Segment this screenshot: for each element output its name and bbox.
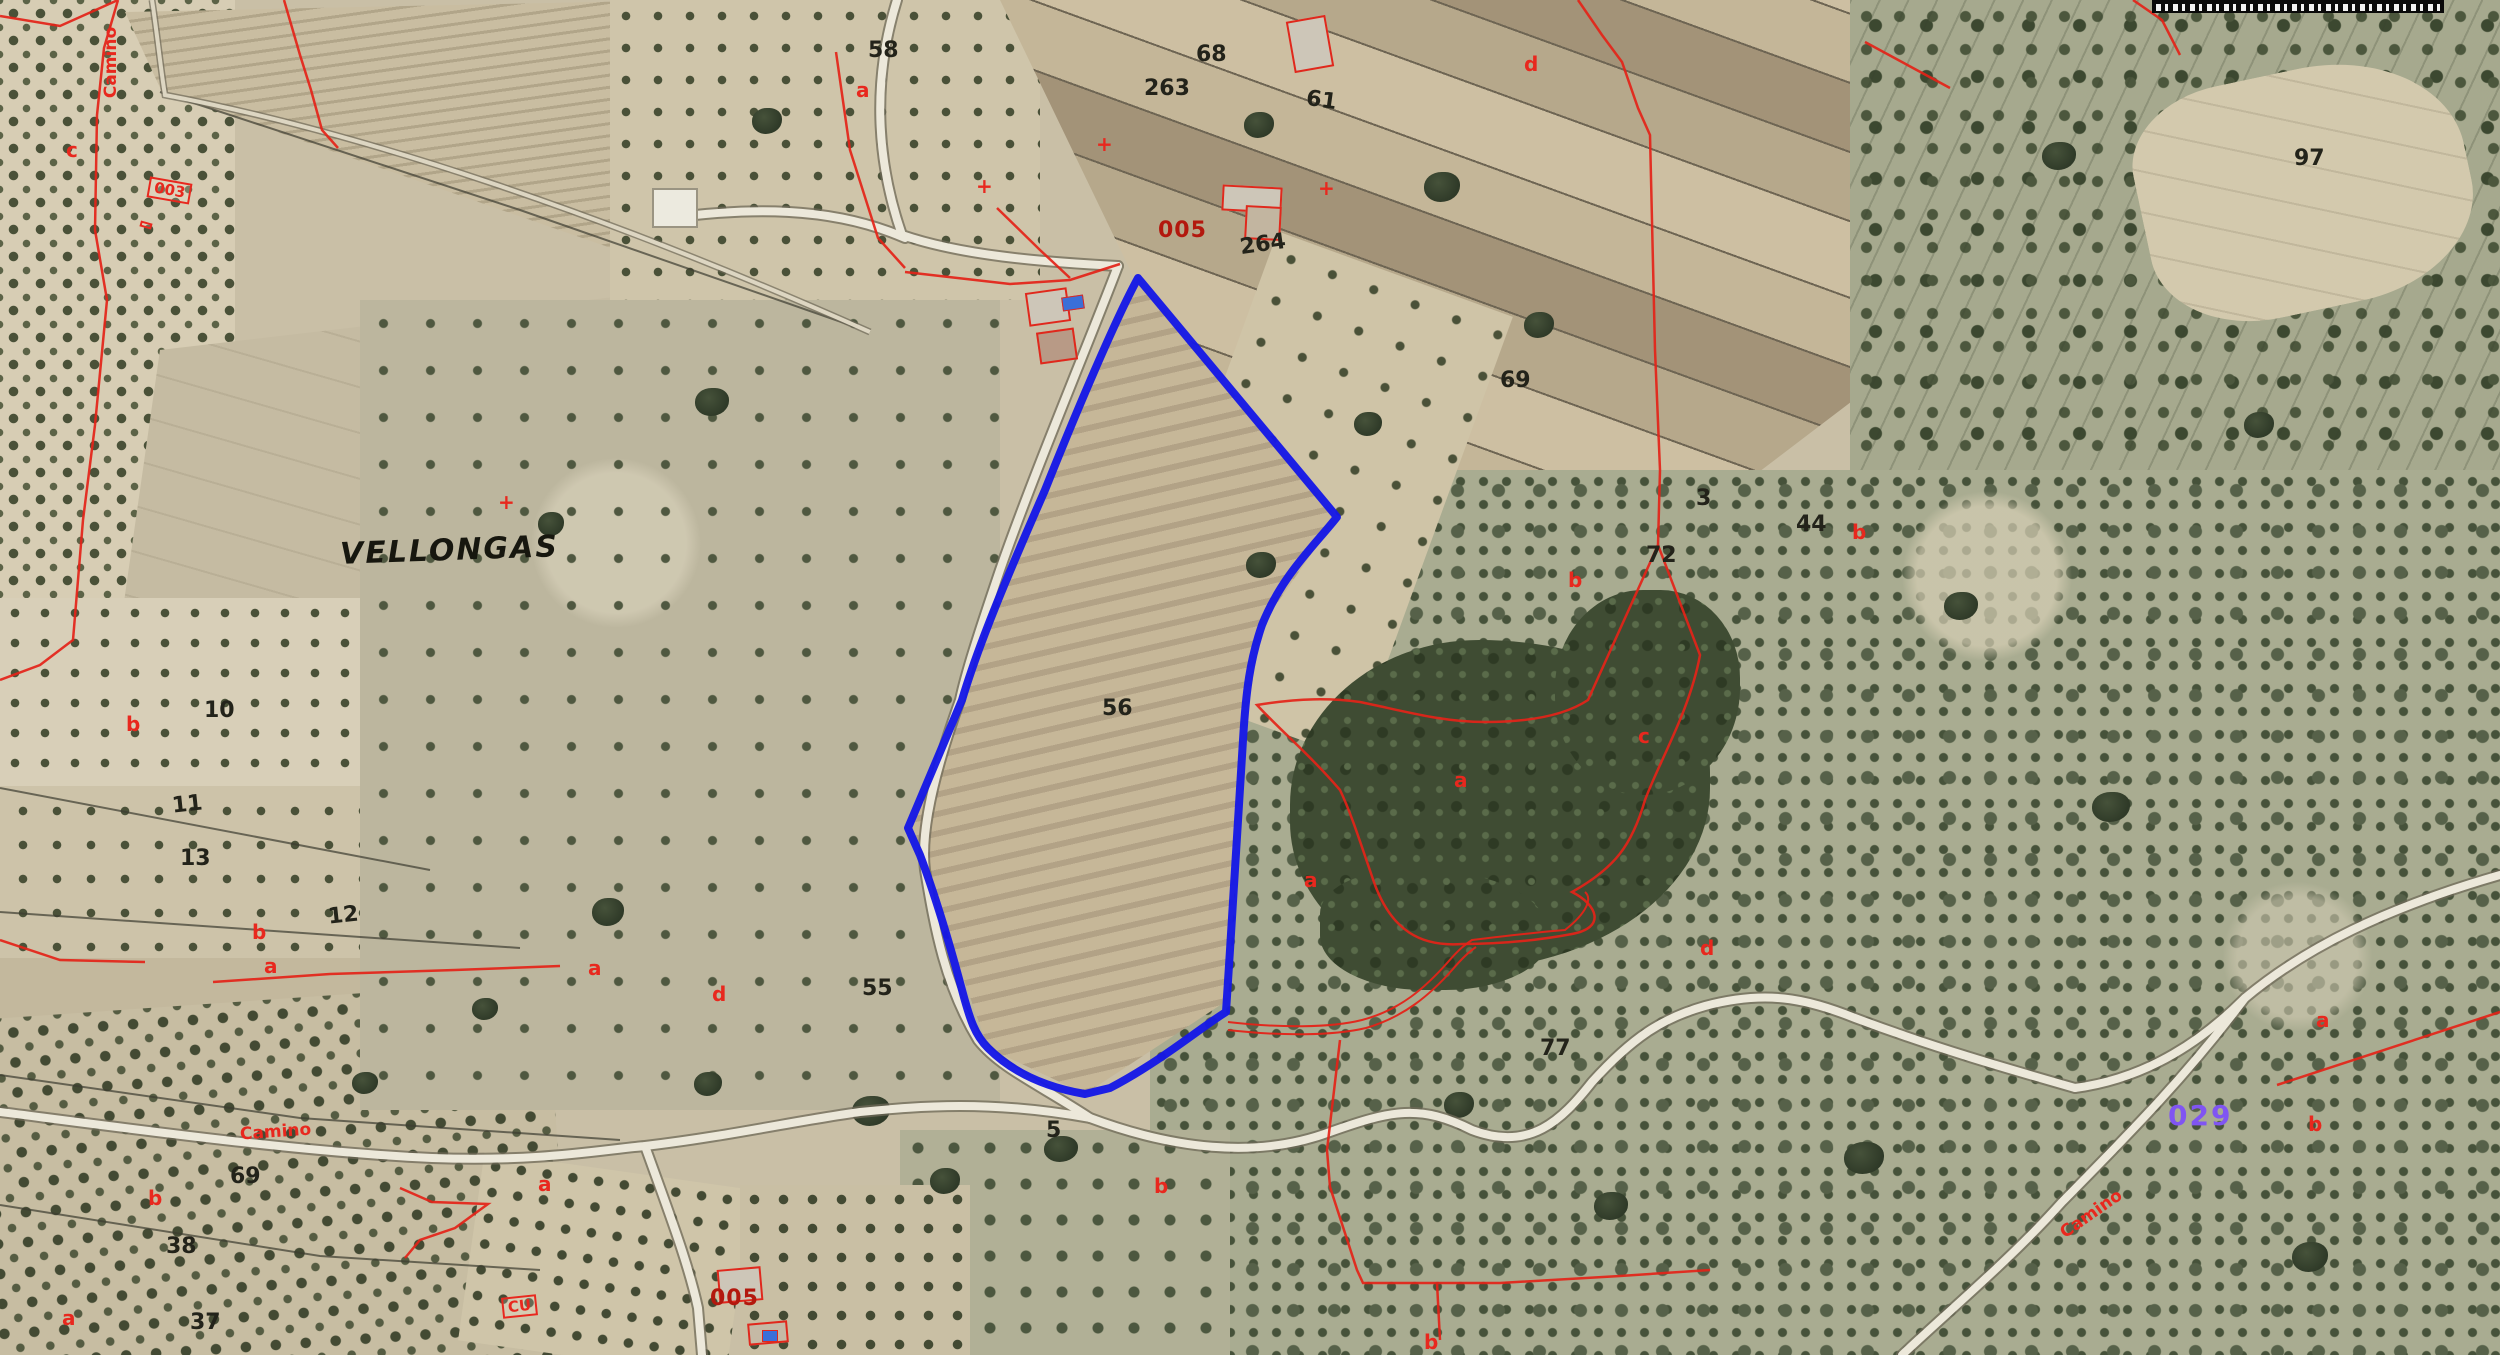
subparcel-a-4: a <box>538 1174 552 1194</box>
building-code-cu: CU <box>501 1294 538 1319</box>
subparcel-d-1: d <box>1524 54 1538 74</box>
building-code-005-top: 005 <box>1158 220 1207 242</box>
survey-cross-3: + <box>1318 178 1335 198</box>
subparcel-b-1: b <box>126 714 140 734</box>
parcel-number-55: 55 <box>862 978 893 1000</box>
parcel-number-72: 72 <box>1646 545 1677 567</box>
subparcel-d-3: d <box>1700 938 1714 958</box>
map-labels-layer: VELLONGAS5868263619726469344725610111312… <box>0 0 2500 1355</box>
subparcel-c-2: c <box>1638 726 1650 746</box>
parcel-number-264: 264 <box>1239 231 1288 259</box>
subparcel-b-8: b <box>2308 1114 2322 1134</box>
building-code-005-bottom: 005 <box>710 1288 759 1310</box>
subparcel-a-7: a <box>1304 870 1318 890</box>
building-outline-box <box>139 220 152 229</box>
camino-label-topleft: Camino <box>103 27 120 98</box>
toponym-vellongas: VELLONGAS <box>340 532 560 570</box>
parcel-number-5: 5 <box>1046 1120 1061 1142</box>
parcel-number-263: 263 <box>1144 78 1190 100</box>
parcel-number-56: 56 <box>1102 698 1133 720</box>
attribution-bar <box>2152 0 2444 13</box>
subparcel-a-1: a <box>856 80 870 100</box>
subparcel-a-3: a <box>588 958 602 978</box>
subparcel-c-1: c <box>66 140 78 160</box>
parcel-number-37: 37 <box>190 1312 221 1334</box>
subparcel-a-6: a <box>1454 770 1468 790</box>
parcel-number-13: 13 <box>180 848 211 870</box>
parcel-number-12: 12 <box>327 903 360 928</box>
survey-cross-4: + <box>498 492 515 512</box>
parcel-number-69b: 69 <box>230 1166 261 1188</box>
aerial-cadastral-map: VELLONGAS5868263619726469344725610111312… <box>0 0 2500 1355</box>
parcel-number-38: 38 <box>166 1236 197 1258</box>
subparcel-a-2: a <box>264 956 278 976</box>
survey-cross-1: + <box>1096 134 1113 154</box>
parcel-number-3: 3 <box>1696 488 1711 510</box>
parcel-number-44: 44 <box>1796 514 1827 536</box>
parcel-number-69: 69 <box>1500 370 1531 392</box>
subparcel-d-2: d <box>712 984 726 1004</box>
subparcel-a-5: a <box>62 1308 76 1328</box>
building-code-003: 003 <box>147 176 193 204</box>
camino-label-bottomright: Camino <box>2058 1187 2126 1242</box>
subparcel-b-7: b <box>1852 522 1866 542</box>
subparcel-b-6: b <box>1568 570 1582 590</box>
survey-cross-2: + <box>976 176 993 196</box>
parcel-number-61: 61 <box>1305 88 1338 114</box>
subparcel-b-4: b <box>1154 1176 1168 1196</box>
parcel-number-11: 11 <box>171 792 204 817</box>
parcel-number-77: 77 <box>1540 1038 1571 1060</box>
subparcel-b-3: b <box>148 1188 162 1208</box>
parcel-number-10: 10 <box>204 700 235 722</box>
camino-label-bottomleft: Camino <box>239 1122 311 1144</box>
municipality-code-029: 029 <box>2168 1102 2232 1130</box>
subparcel-b-5: b <box>1424 1332 1438 1352</box>
parcel-number-97: 97 <box>2294 148 2325 170</box>
parcel-number-68: 68 <box>1196 44 1227 66</box>
subparcel-a-8: a <box>2316 1010 2330 1030</box>
clipped-attribution-text <box>2156 4 2440 11</box>
parcel-number-58: 58 <box>868 40 899 62</box>
subparcel-b-2: b <box>252 922 266 942</box>
